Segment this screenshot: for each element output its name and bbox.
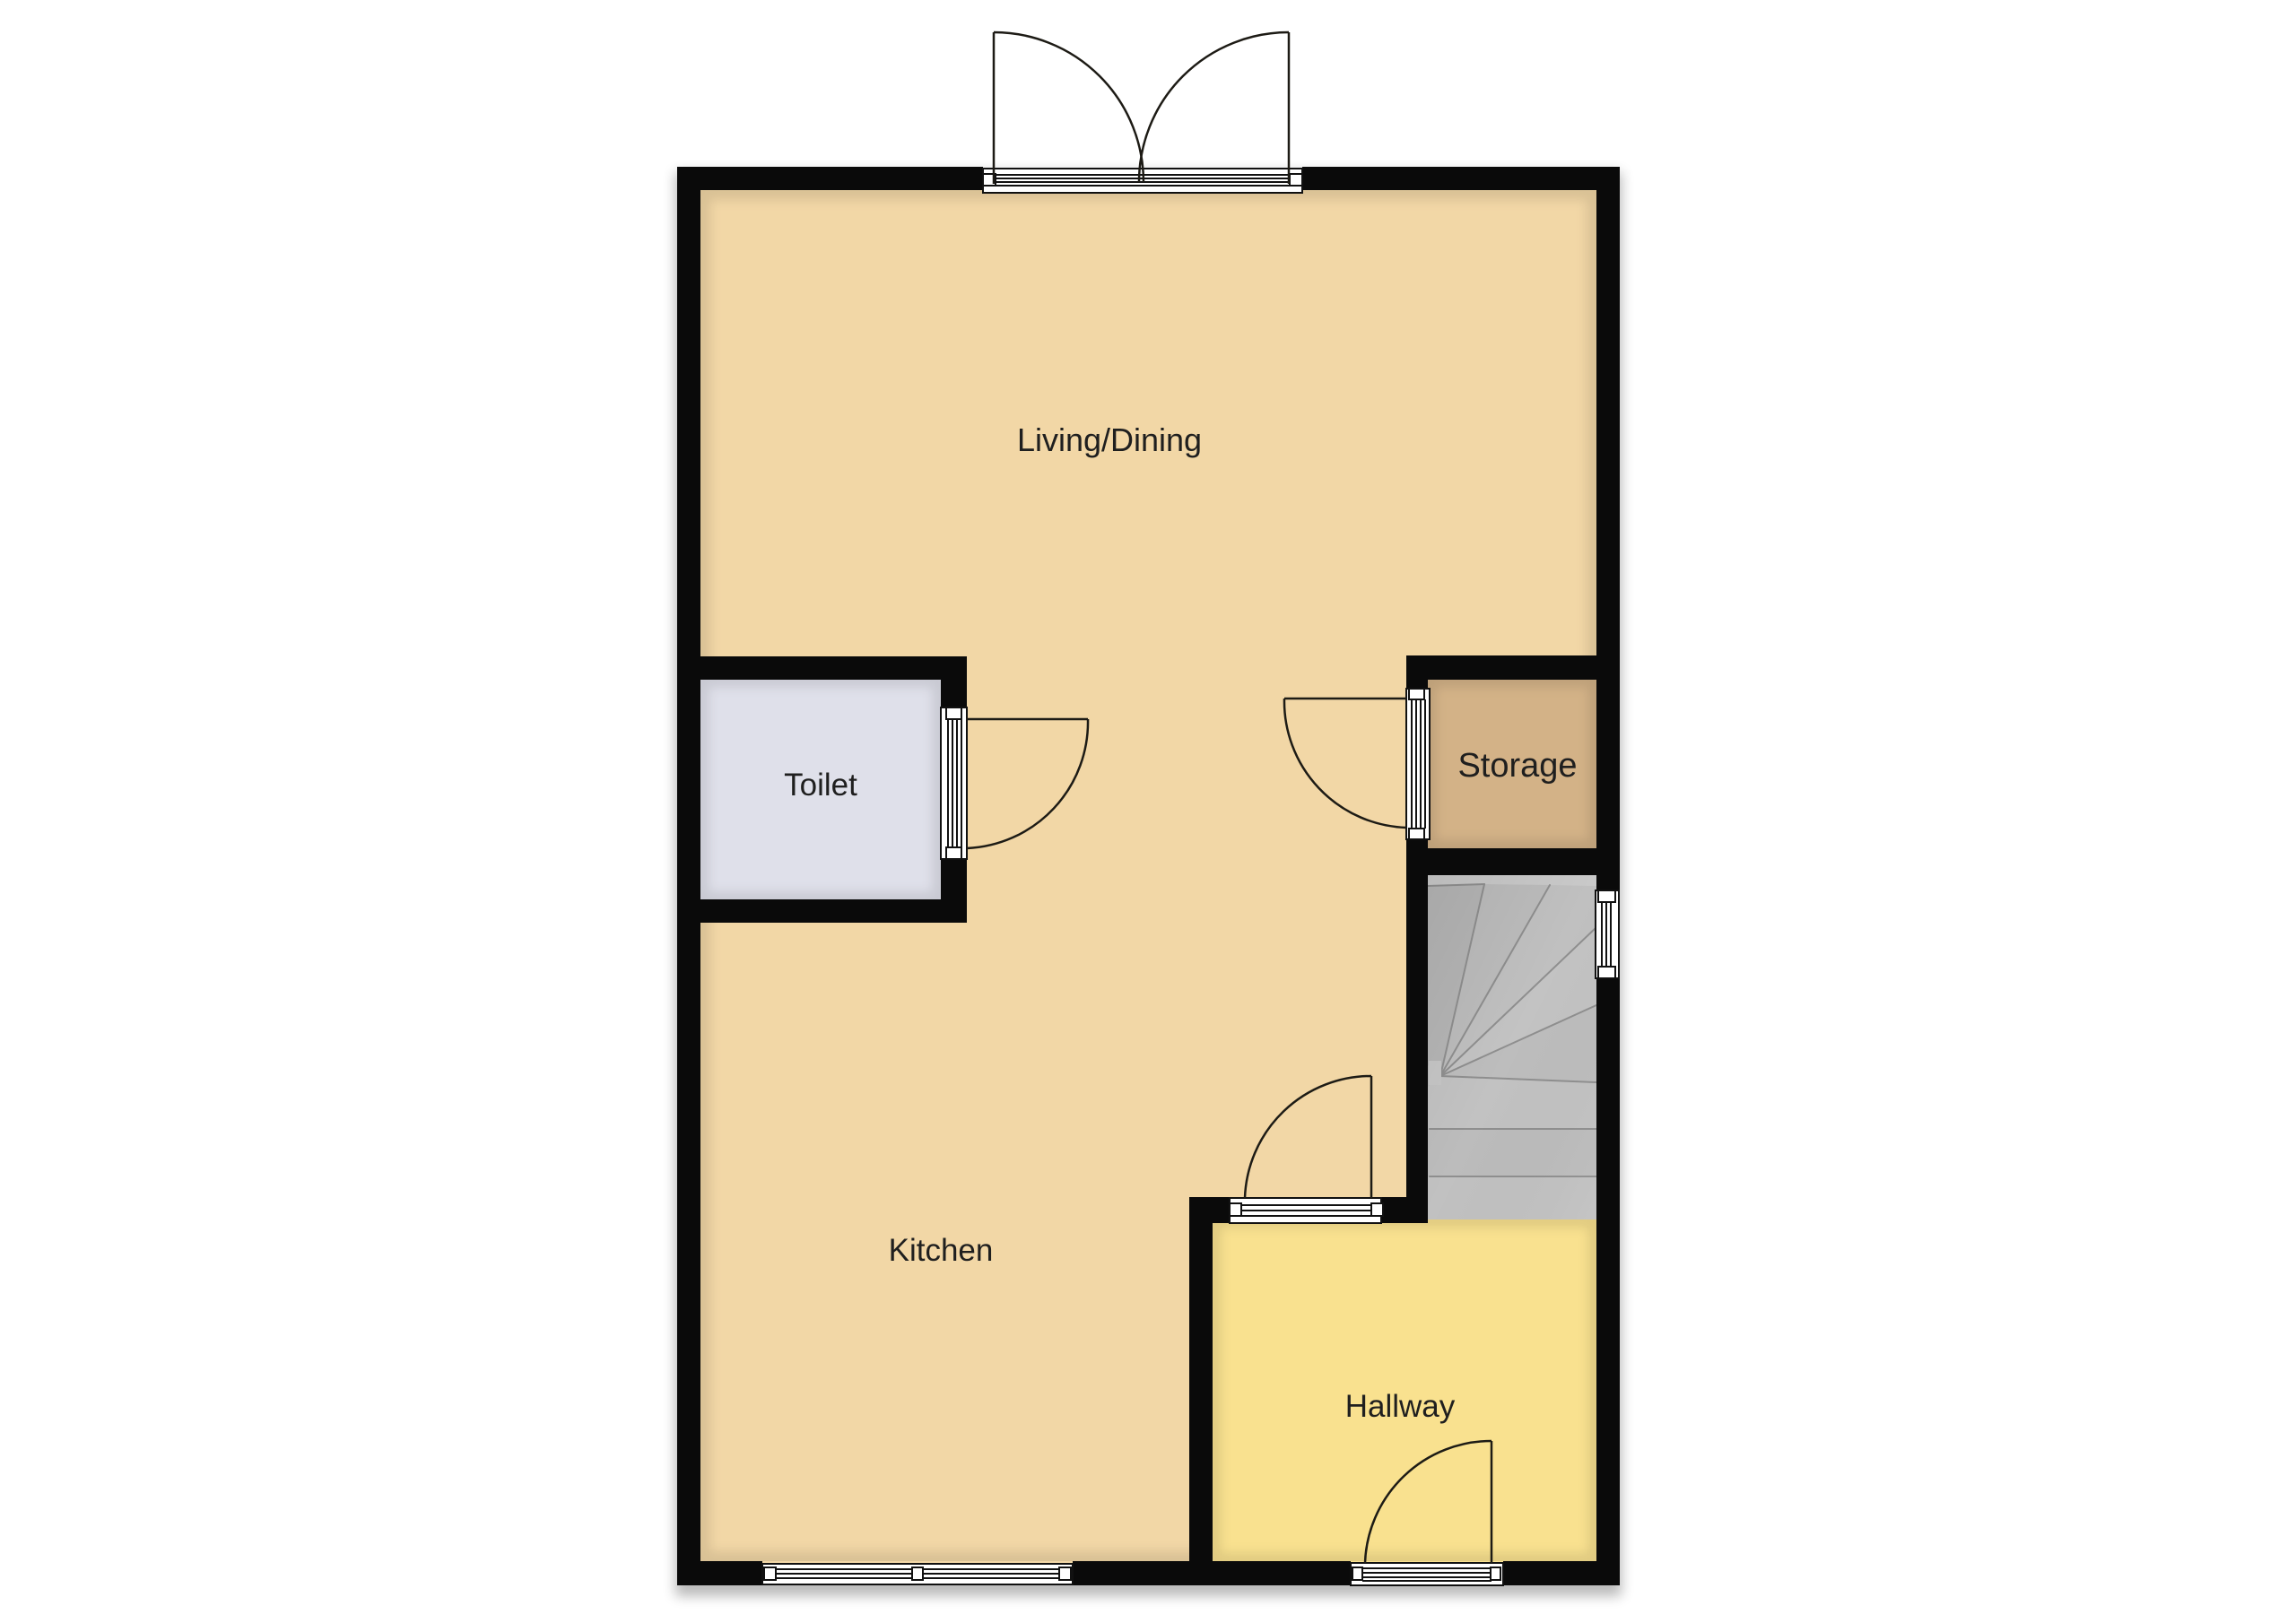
svg-text:Living/Dining: Living/Dining xyxy=(1017,421,1202,458)
svg-text:Kitchen: Kitchen xyxy=(889,1233,994,1268)
svg-text:Toilet: Toilet xyxy=(784,768,857,803)
svg-text:Hallway: Hallway xyxy=(1345,1389,1456,1424)
svg-text:Storage: Storage xyxy=(1457,747,1577,785)
